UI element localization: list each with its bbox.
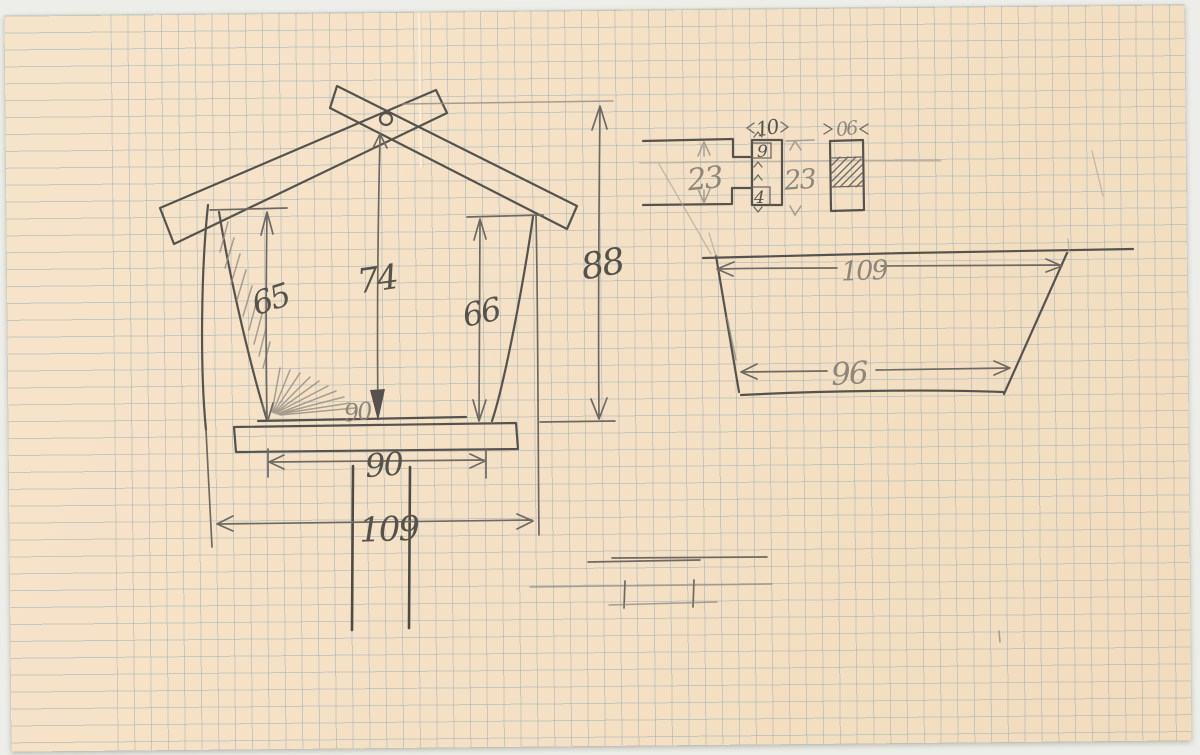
dim-10: 10 [747,114,788,142]
left-extension-line [206,430,212,547]
pencil-sketch: 65 74 66 88 90 90 109 [0,0,1200,755]
dim-label-65: 65 [247,275,294,323]
dim-109-base: 109 [217,509,533,551]
dim-label-90-base: 90 [364,444,405,485]
dim-23-right: 23 [782,140,816,215]
plate-upper-profile [643,139,752,157]
dim-label-109-panel: 109 [841,255,889,288]
notch-4: 4 [753,175,770,212]
dim-label-66: 66 [459,289,504,334]
paper-crease [419,13,423,168]
stray-marks [999,151,1103,642]
dim-label-88: 88 [578,241,627,289]
roof-panel-view: 109 96 [703,233,1133,395]
roof-board-left [160,90,447,244]
dark-stroke [588,557,767,562]
front-elevation: 65 74 66 88 90 90 109 [160,86,627,630]
ridge-hole [380,113,392,125]
panel-left-edge [716,256,739,392]
short-line [609,602,717,605]
dim-90-platform: 90 [343,397,374,428]
joint-detail: 9 4 10 23 23 [640,114,941,254]
long-line [530,584,772,587]
hatched-block [830,140,941,211]
dim-label-109-base: 109 [358,509,420,551]
dim-23-left: 23 [659,142,724,254]
roof-board-right [330,86,577,229]
side-profile-sketch [530,557,772,608]
dim-74: 74 [355,134,400,421]
dim-label-9: 9 [757,142,768,162]
dim-109-panel: 109 [717,255,1062,288]
dim-88: 88 [402,101,627,422]
right-extension-line [536,215,539,535]
dim-label-74: 74 [355,257,400,302]
panel-bottom-edge [741,391,1003,395]
dim-label-10: 10 [754,114,782,142]
dim-label-23-left: 23 [685,160,725,199]
dim-label-96-panel: 96 [830,355,869,393]
dim-label-06: 06 [835,117,859,141]
dim-06: 06 [824,117,868,141]
panel-right-edge [1004,253,1067,394]
dim-96-panel: 96 [741,355,1010,393]
left-wall-outer [202,205,208,430]
dim-label-90-platform: 90 [343,397,374,428]
dim-label-23-right: 23 [782,164,816,197]
dim-label-4: 4 [753,188,764,208]
